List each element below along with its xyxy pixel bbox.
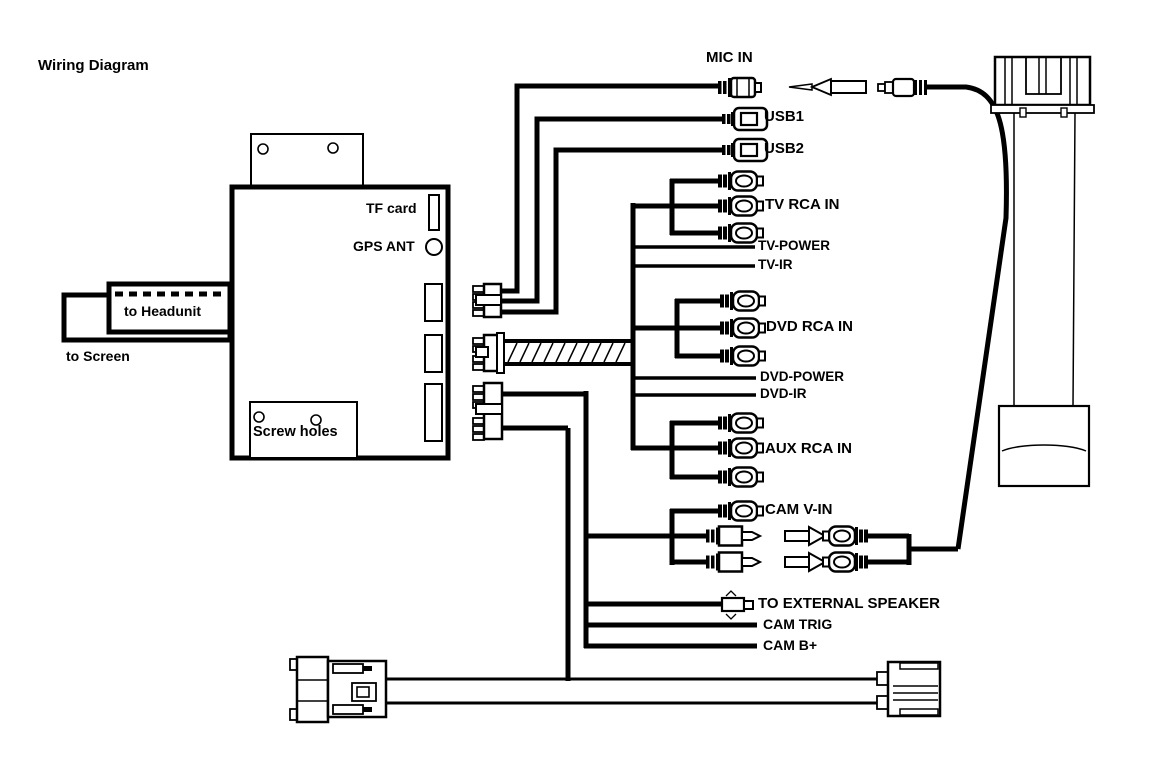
bottom-right-connector	[877, 662, 940, 716]
shielded-cable	[503, 341, 633, 364]
aux-rca-jack-icon	[718, 468, 763, 487]
label-screw-holes: Screw holes	[253, 424, 338, 441]
dvd-rca-jack-icon	[720, 319, 765, 338]
cam-v-in-jack-icon	[718, 502, 763, 521]
tv-rca-jack-icon	[718, 197, 763, 216]
label-to-external-speaker: TO EXTERNAL SPEAKER	[758, 595, 940, 612]
cam-rca-jack-icon	[823, 527, 868, 546]
speaker-connector-icon	[722, 591, 753, 619]
unit-port-icon	[425, 384, 442, 441]
usb2-port-icon	[722, 139, 767, 161]
screw-hole-icon	[328, 143, 338, 153]
aux-rca-jack-icon	[718, 414, 763, 433]
harness-plug-b	[473, 333, 504, 373]
label-dvd-ir: DVD-IR	[760, 386, 807, 402]
bottom-left-connector	[290, 657, 386, 722]
label-gps-ant: GPS ANT	[353, 238, 415, 254]
antenna-icon	[991, 57, 1094, 486]
usb1-port-icon	[722, 108, 767, 130]
harness-plug-c	[473, 383, 502, 440]
connect-arrow-icon	[785, 553, 825, 571]
label-tv-power: TV-POWER	[758, 238, 830, 254]
audio-plug-icon	[878, 79, 927, 96]
cam-rca-jack-icon	[823, 553, 868, 572]
label-dvd-rca-in: DVD RCA IN	[766, 318, 853, 335]
label-usb1: USB1	[764, 108, 804, 125]
label-cam-trig: CAM TRIG	[763, 616, 832, 632]
head-unit	[232, 134, 448, 458]
label-aux-rca-in: AUX RCA IN	[765, 440, 852, 457]
dvd-rca-jack-icon	[720, 347, 765, 366]
label-tv-ir: TV-IR	[758, 257, 793, 273]
gps-ant-jack-icon	[426, 239, 442, 255]
tv-rca-jack-icon	[718, 172, 763, 191]
dvd-rca-jack-icon	[720, 292, 765, 311]
unit-port-icon	[425, 284, 442, 321]
antenna-adapter-plug-icon	[789, 79, 866, 95]
unit-port-icon	[425, 335, 442, 372]
label-cam-b-plus: CAM B+	[763, 637, 817, 653]
screw-hole-icon	[258, 144, 268, 154]
label-tv-rca-in: TV RCA IN	[765, 196, 839, 213]
label-dvd-power: DVD-POWER	[760, 369, 844, 385]
screw-hole-icon	[254, 412, 264, 422]
label-mic-in: MIC IN	[706, 49, 753, 66]
cam-plug-icon	[706, 553, 760, 572]
extension-cable	[927, 87, 1006, 549]
tv-rca-jack-icon	[718, 224, 763, 243]
harness-plug-a	[473, 284, 501, 317]
label-tf-card: TF card	[366, 200, 417, 216]
connect-arrow-icon	[785, 527, 825, 545]
usb1-wire	[499, 119, 722, 301]
label-to-screen: to Screen	[66, 348, 130, 364]
wiring-diagram-canvas: Wiring Diagram MIC IN USB1 USB2 TV RCA I…	[0, 0, 1168, 757]
label-cam-v-in: CAM V-IN	[765, 501, 833, 518]
mounting-tab-top	[251, 134, 363, 186]
cam-plug-icon	[706, 527, 760, 546]
label-to-headunit: to Headunit	[124, 303, 201, 319]
mic-jack-icon	[718, 78, 761, 97]
tf-card-slot-icon	[429, 195, 439, 230]
label-usb2: USB2	[764, 140, 804, 157]
aux-rca-jack-icon	[718, 439, 763, 458]
page-title: Wiring Diagram	[38, 57, 149, 74]
diagram-graphics	[0, 0, 1168, 757]
